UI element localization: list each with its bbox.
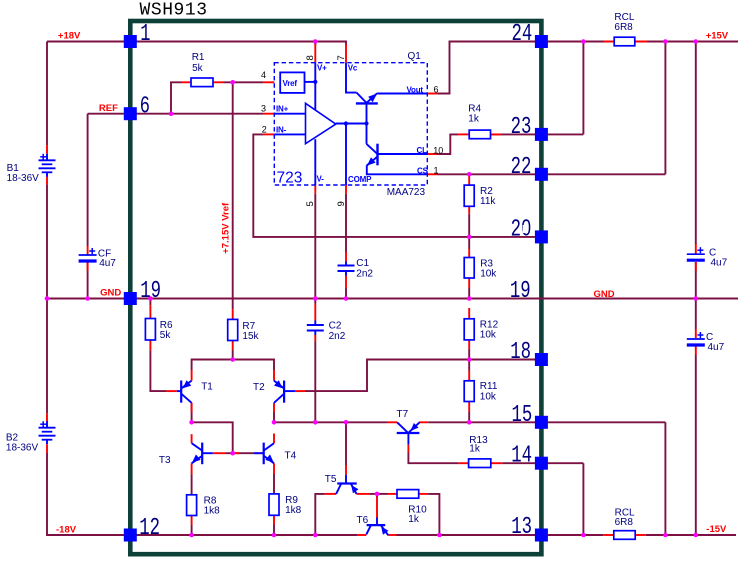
svg-text:T4: T4 (285, 451, 297, 462)
svg-text:4: 4 (261, 70, 266, 80)
svg-text:REF: REF (99, 103, 118, 114)
svg-text:1: 1 (140, 21, 150, 48)
svg-text:1: 1 (434, 166, 439, 176)
svg-text:19: 19 (510, 278, 531, 305)
svg-text:18-36V: 18-36V (7, 173, 40, 184)
svg-text:1k8: 1k8 (285, 505, 302, 516)
svg-text:-18V: -18V (56, 525, 77, 536)
svg-text:6R8: 6R8 (615, 517, 634, 528)
svg-text:+7.15V Vref: +7.15V Vref (221, 202, 232, 254)
svg-text:12: 12 (139, 515, 160, 542)
svg-text:C1: C1 (356, 258, 369, 269)
svg-text:T6: T6 (357, 515, 369, 526)
svg-text:IN-: IN- (276, 125, 287, 134)
svg-text:18-36V: 18-36V (6, 443, 39, 454)
svg-text:1k: 1k (469, 444, 481, 455)
svg-text:10k: 10k (480, 329, 497, 340)
svg-text:23: 23 (511, 114, 532, 141)
svg-text:6: 6 (140, 93, 150, 120)
svg-text:14: 14 (511, 443, 532, 470)
svg-text:6: 6 (434, 84, 439, 94)
svg-text:10: 10 (433, 145, 443, 155)
svg-text:20: 20 (511, 217, 532, 244)
svg-text:2: 2 (262, 124, 267, 134)
svg-text:24: 24 (512, 21, 533, 48)
svg-text:5k: 5k (160, 330, 172, 341)
svg-text:18: 18 (510, 339, 531, 366)
svg-text:GND: GND (100, 287, 121, 298)
svg-text:5: 5 (305, 201, 316, 206)
svg-text:2n2: 2n2 (356, 269, 373, 280)
svg-text:T5: T5 (325, 474, 337, 485)
svg-text:COMP: COMP (348, 175, 372, 184)
svg-text:CL: CL (417, 146, 428, 155)
svg-text:1k: 1k (468, 113, 480, 124)
svg-text:Vout: Vout (407, 86, 424, 95)
svg-text:3: 3 (261, 104, 266, 114)
svg-text:6R8: 6R8 (614, 22, 633, 33)
svg-text:V-: V- (317, 175, 325, 184)
svg-text:Q1: Q1 (408, 51, 422, 62)
svg-text:IN+: IN+ (276, 105, 289, 114)
svg-text:-15V: -15V (706, 524, 727, 535)
svg-text:C2: C2 (329, 321, 342, 332)
svg-text:15k: 15k (242, 331, 259, 342)
svg-text:GND: GND (594, 289, 615, 300)
svg-text:11k: 11k (480, 196, 496, 207)
svg-text:2n2: 2n2 (329, 331, 346, 342)
svg-text:T1: T1 (201, 382, 213, 393)
svg-text:22: 22 (511, 154, 532, 181)
svg-text:V+: V+ (317, 64, 327, 73)
svg-text:MAA723: MAA723 (387, 187, 426, 198)
svg-text:Vref: Vref (283, 79, 298, 88)
svg-text:1k: 1k (408, 514, 420, 525)
svg-text:T7: T7 (397, 409, 409, 420)
svg-text:5k: 5k (192, 63, 204, 74)
svg-text:T2: T2 (253, 382, 265, 393)
svg-text:1k8: 1k8 (204, 506, 221, 517)
svg-text:WSH913: WSH913 (140, 1, 208, 21)
svg-text:T3: T3 (159, 455, 171, 466)
svg-text:Vc: Vc (348, 64, 358, 73)
svg-text:7: 7 (336, 55, 347, 60)
svg-text:R1: R1 (192, 52, 205, 63)
svg-text:19: 19 (140, 278, 161, 305)
svg-text:13: 13 (511, 514, 532, 541)
svg-text:10k: 10k (480, 391, 497, 402)
svg-text:+18V: +18V (58, 30, 81, 41)
svg-text:15: 15 (512, 402, 533, 429)
svg-text:8: 8 (305, 55, 316, 60)
svg-text:4u7: 4u7 (99, 258, 116, 269)
svg-text:+15V: +15V (706, 30, 729, 41)
svg-text:9: 9 (336, 201, 347, 206)
svg-text:4u7: 4u7 (708, 342, 725, 353)
svg-text:CS: CS (417, 167, 429, 176)
svg-text:4u7: 4u7 (711, 258, 728, 269)
svg-text:10k: 10k (480, 269, 497, 280)
svg-text:723: 723 (277, 169, 303, 186)
